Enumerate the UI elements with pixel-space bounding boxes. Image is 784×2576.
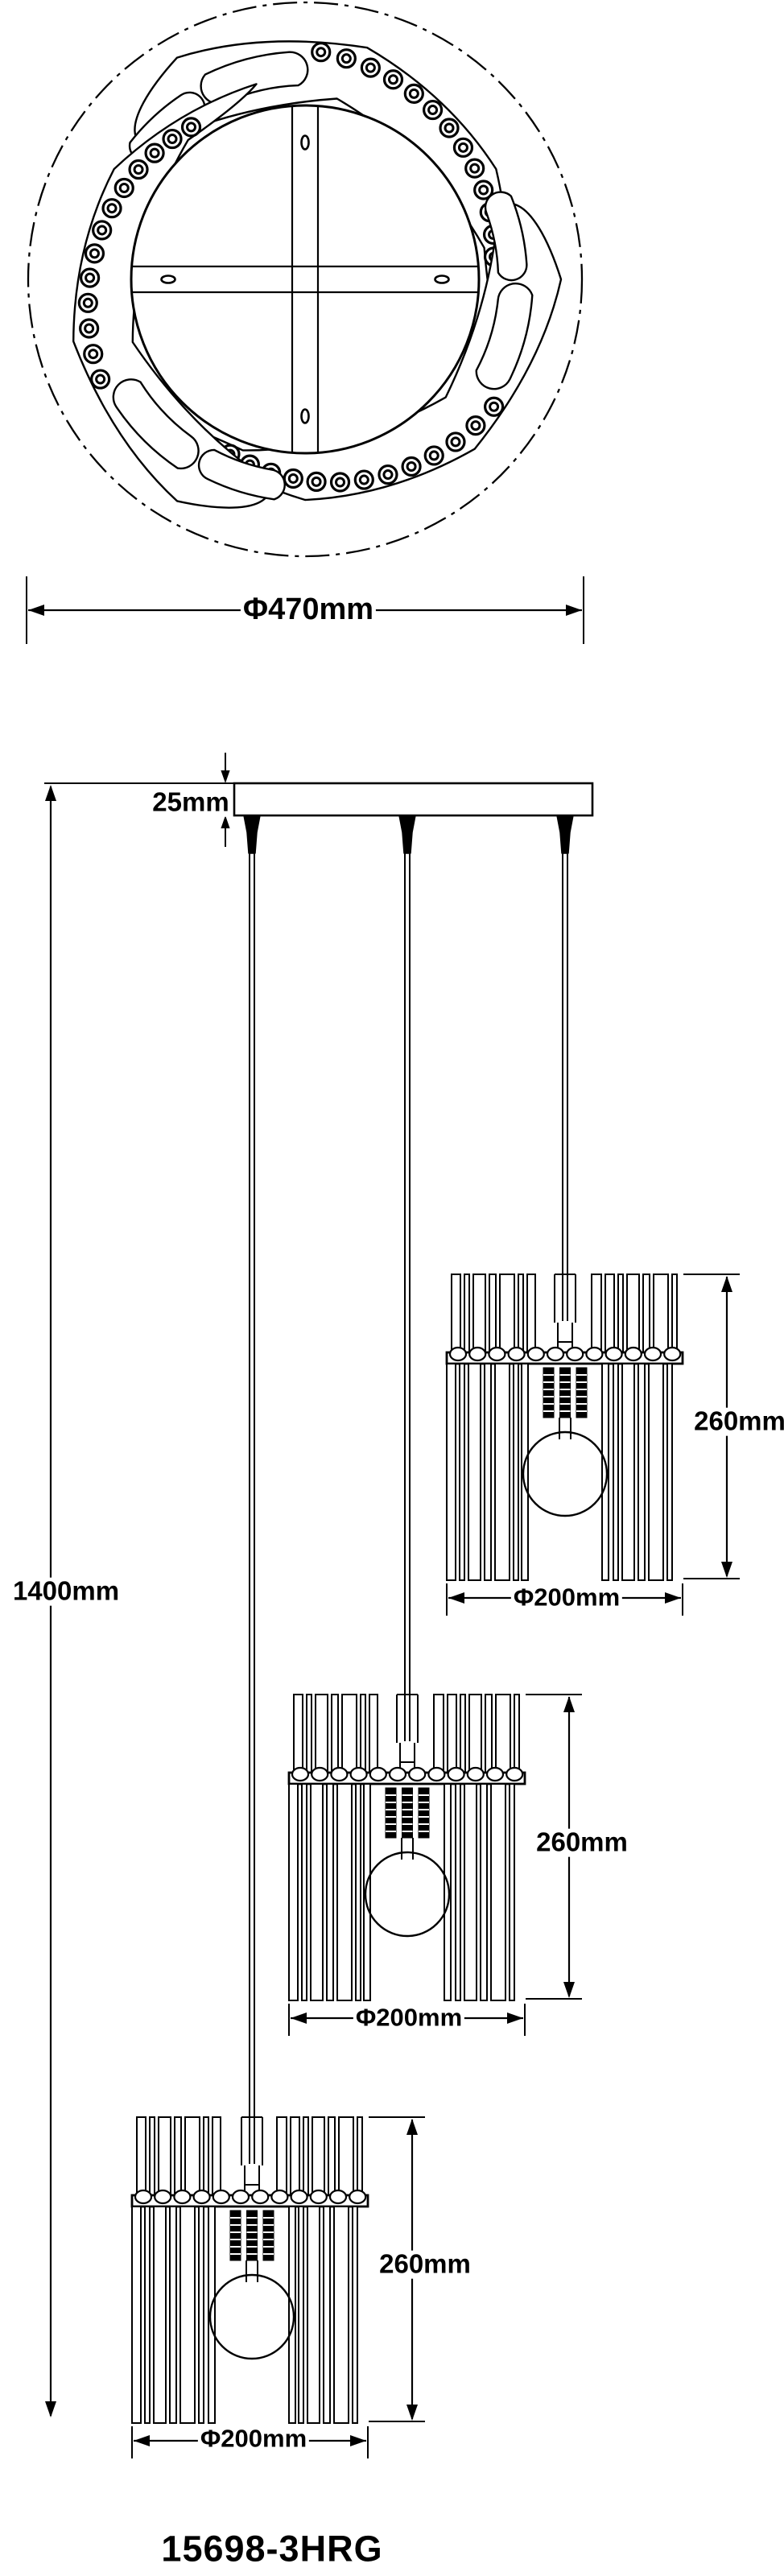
plate-thickness-label: 25mm [150,789,231,817]
shade2-height-label: 260mm [534,1829,630,1857]
total-height-label: 1400mm [10,1578,122,1606]
canopy-diameter-label: Φ470mm [241,594,376,626]
shade2-diameter-label: Φ200mm [353,2005,464,2032]
shade1-diameter-label: Φ200mm [511,1585,622,1612]
model-number-label: 15698-3HRG [159,2529,385,2567]
pendant-lamp-technical-drawing [0,0,784,2576]
shade3-diameter-label: Φ200mm [198,2426,309,2453]
shade3-height-label: 260mm [377,2251,473,2279]
top-view [28,2,582,556]
spec-sheet-page: { "page": {"background": "#ffffff", "lin… [0,0,784,2576]
shade1-height-label: 260mm [691,1408,784,1436]
